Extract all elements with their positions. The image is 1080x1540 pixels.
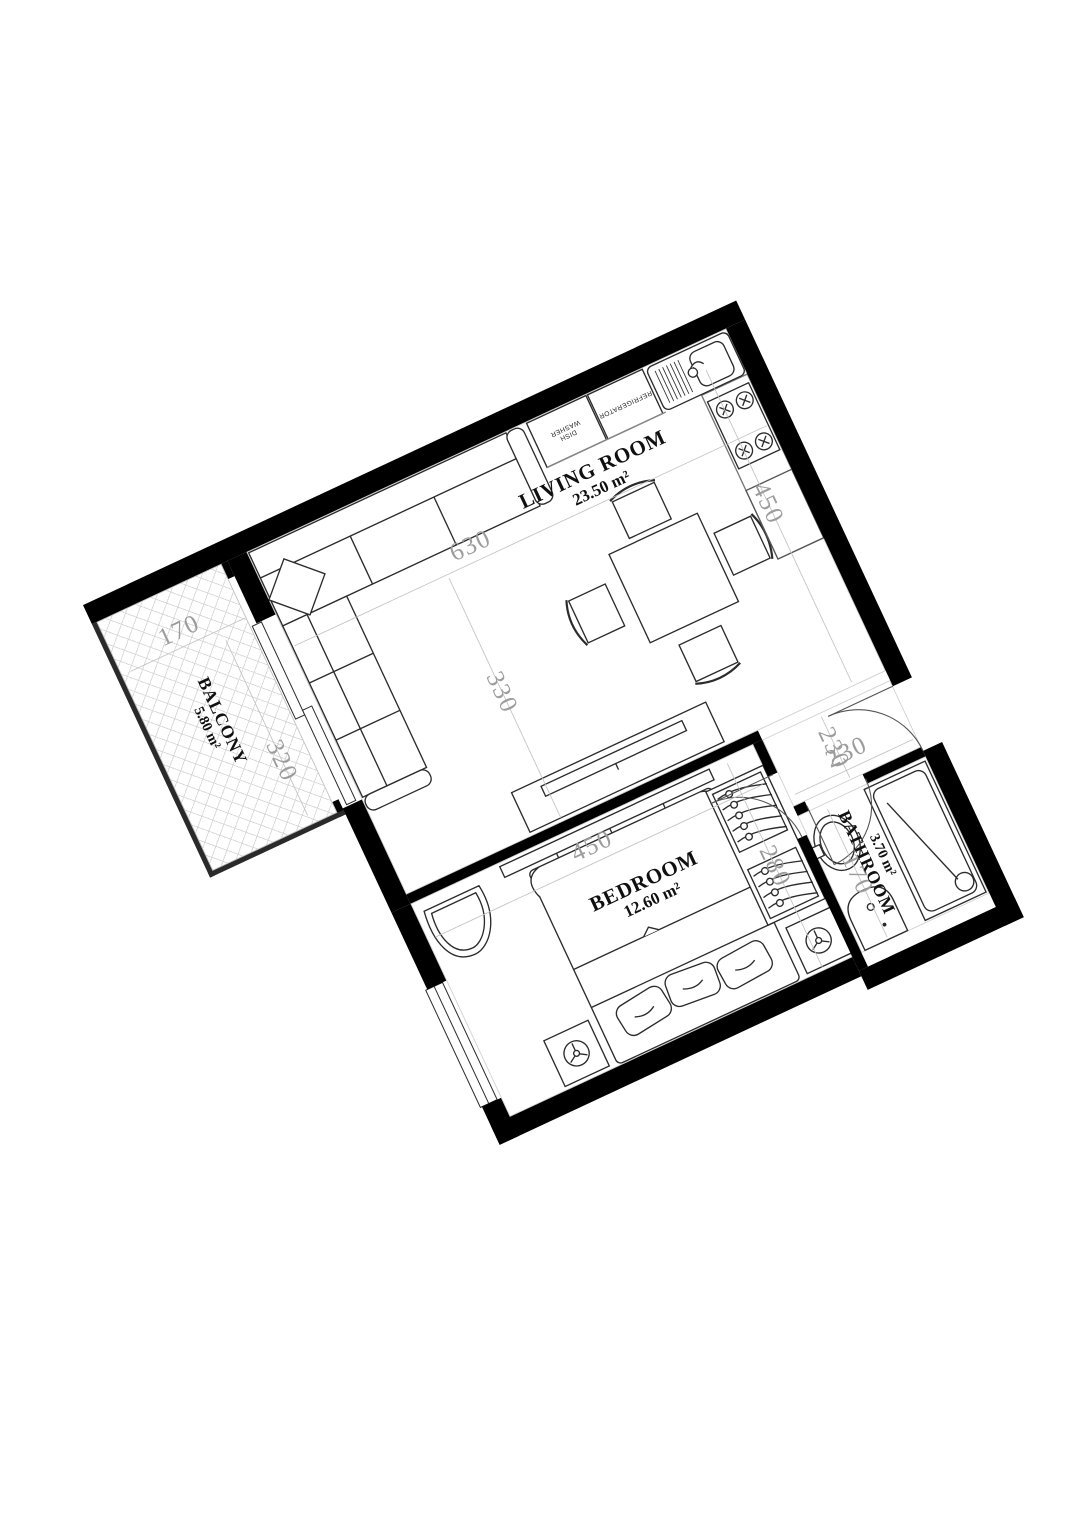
apartment-plan: 630 330 450 230 230 170 450 280 170 320 … (66, 300, 1023, 1229)
doors-layer (66, 300, 1023, 1229)
floor-plan-canvas: 630 330 450 230 230 170 450 280 170 320 … (0, 0, 1080, 1540)
